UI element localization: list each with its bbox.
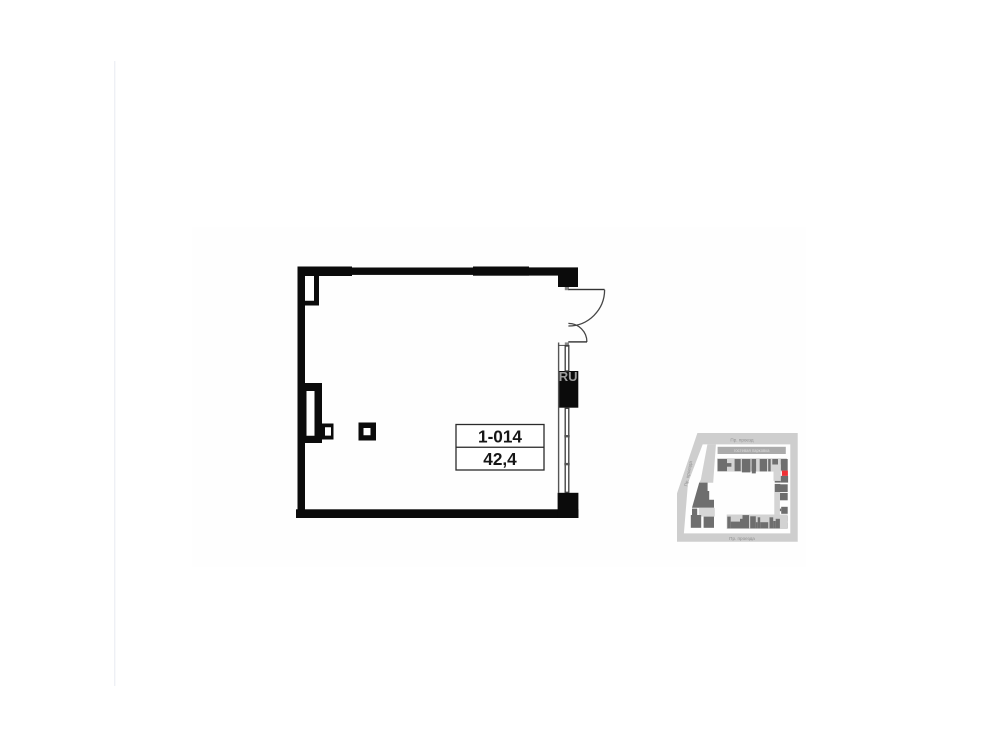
svg-text:Пр. проезд: Пр. проезд	[730, 437, 753, 442]
svg-text:Пр. проезда: Пр. проезда	[729, 536, 755, 541]
svg-text:1-014: 1-014	[478, 427, 522, 447]
svg-text:гостевая парковка: гостевая парковка	[734, 448, 770, 453]
svg-text:42,4: 42,4	[483, 449, 517, 469]
